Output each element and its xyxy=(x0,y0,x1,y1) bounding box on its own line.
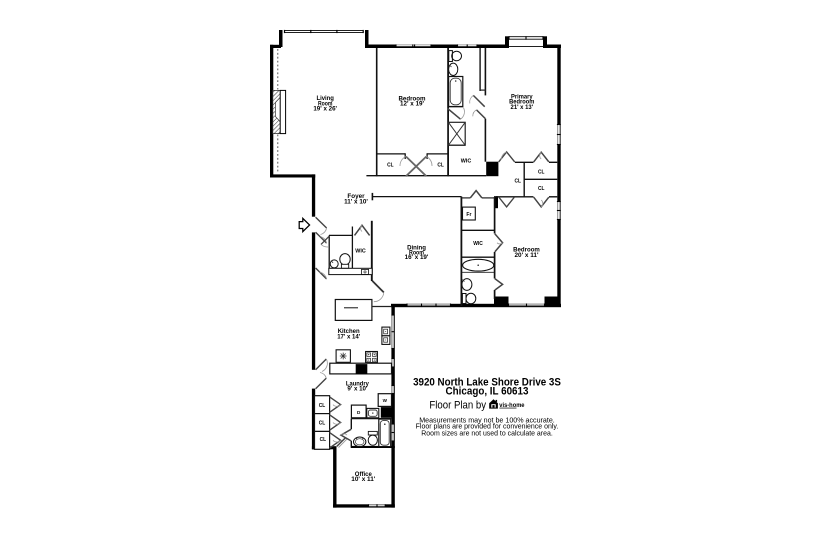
svg-text:Room sizes are not used to cal: Room sizes are not used to calculate are… xyxy=(421,428,553,437)
svg-text:20' x 11': 20' x 11' xyxy=(515,252,540,259)
svg-text:CL: CL xyxy=(320,437,327,443)
svg-text:Fr: Fr xyxy=(466,212,471,218)
svg-text:21' x 13': 21' x 13' xyxy=(511,104,534,111)
svg-text:CL: CL xyxy=(538,186,545,192)
svg-text:9' x 10': 9' x 10' xyxy=(347,386,368,393)
svg-text:CL: CL xyxy=(319,403,326,409)
svg-text:WIC: WIC xyxy=(473,241,483,247)
svg-text:CL: CL xyxy=(387,162,394,168)
svg-text:11' x 10': 11' x 10' xyxy=(344,198,368,205)
svg-text:Chicago, IL 60613: Chicago, IL 60613 xyxy=(446,386,529,398)
svg-text:16' x 19': 16' x 19' xyxy=(405,254,429,261)
svg-text:WIC: WIC xyxy=(461,159,472,165)
svg-text:19' x 26': 19' x 26' xyxy=(313,106,337,113)
svg-text:17' x 14': 17' x 14' xyxy=(337,334,361,341)
svg-text:12' x 19': 12' x 19' xyxy=(400,101,425,108)
svg-text:CL: CL xyxy=(437,162,444,168)
svg-text:CL: CL xyxy=(514,179,521,185)
svg-text:CL: CL xyxy=(319,420,326,426)
svg-text:CL: CL xyxy=(538,170,545,176)
svg-text:Floor Plan by: Floor Plan by xyxy=(429,399,486,411)
svg-text:W: W xyxy=(383,398,388,403)
svg-text:WIC: WIC xyxy=(355,248,366,254)
svg-text:10' x 11': 10' x 11' xyxy=(351,476,376,483)
